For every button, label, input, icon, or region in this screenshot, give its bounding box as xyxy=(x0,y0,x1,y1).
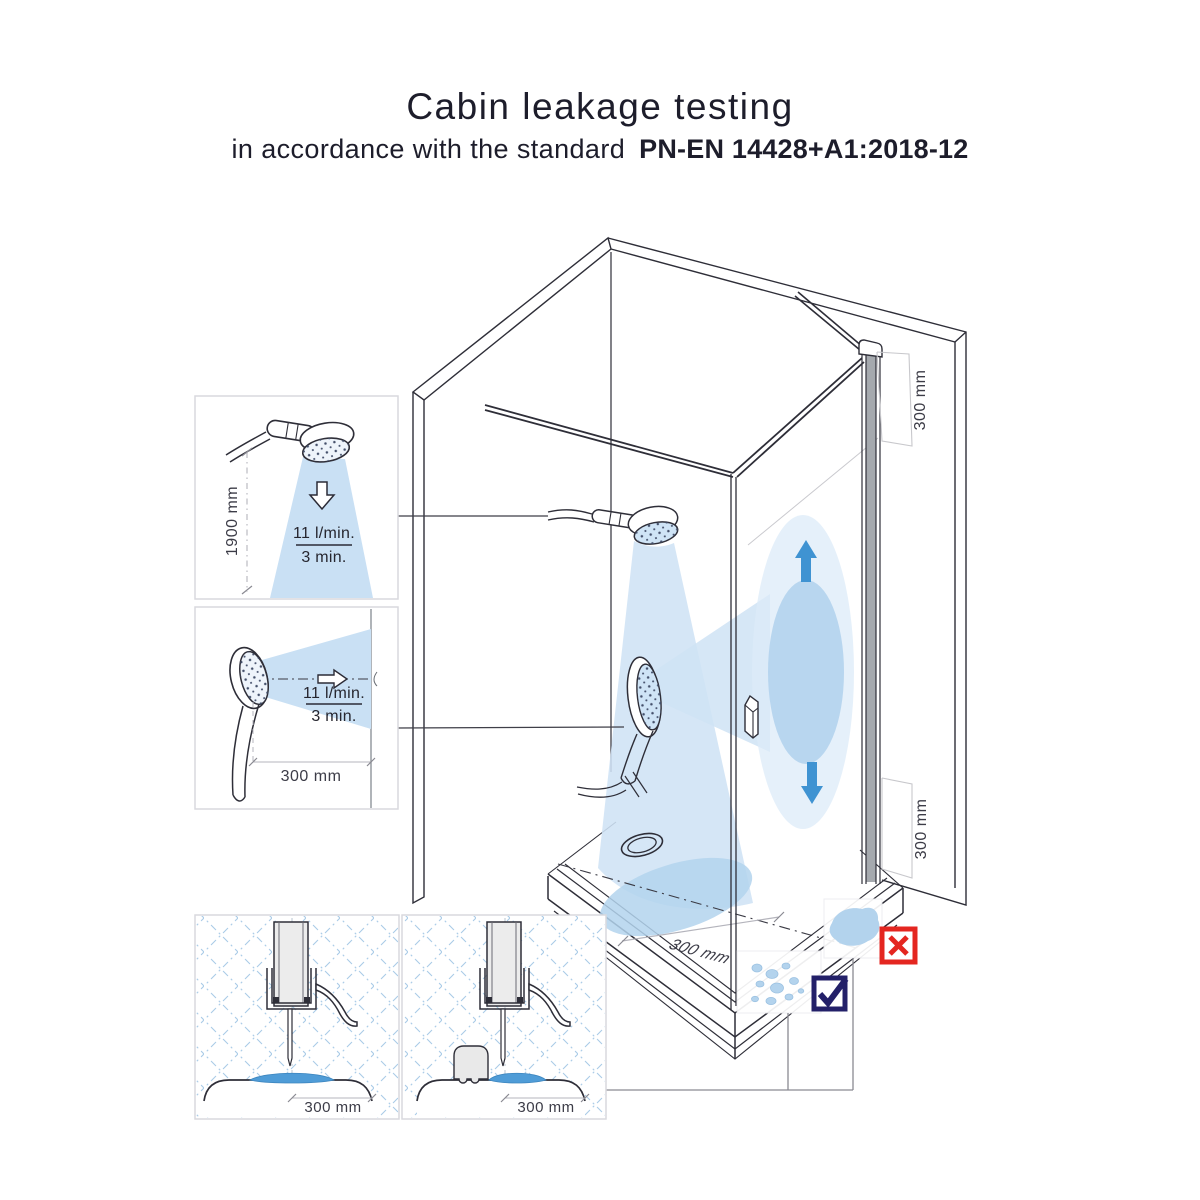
fail-checkbox xyxy=(882,929,915,962)
top-support-bar xyxy=(485,405,733,477)
inset-seal-plain: 300 mm xyxy=(195,915,399,1119)
door-bottom-dimension-label: 300 mm xyxy=(913,799,930,860)
threshold-block xyxy=(454,1046,488,1083)
height-dimension-label: 1900 mm xyxy=(224,486,241,556)
door-top-edge xyxy=(733,358,864,477)
seal-dimension-label: 300 mm xyxy=(304,1099,361,1116)
cabin-leakage-testing-diagram: { "header": { "title": "Cabin leakage te… xyxy=(0,0,1200,1200)
distance-dimension-label: 300 mm xyxy=(281,768,342,785)
flow-rate-label: 11 l/min. xyxy=(303,685,365,702)
spray-cones xyxy=(591,515,854,952)
cabin-shower-head-vertical xyxy=(548,502,680,547)
wall-profile-cap xyxy=(859,340,882,357)
seal-fin xyxy=(501,1009,505,1066)
door-handle xyxy=(745,696,758,738)
inset-vertical-spray: 11 l/min. 3 min. 1900 mm xyxy=(195,396,398,599)
seal-fin xyxy=(288,1009,292,1066)
pass-checkbox xyxy=(814,978,846,1009)
tray-dimension-label: 300 mm xyxy=(665,936,734,967)
door-hinge-edge xyxy=(731,474,736,1010)
wall-support-brace xyxy=(795,292,863,350)
duration-label: 3 min. xyxy=(301,549,346,566)
door-bottom-dimension: 300 mm xyxy=(882,778,930,878)
wall-profile-fill xyxy=(866,352,876,882)
door-spray-ellipse xyxy=(768,580,844,764)
duration-label: 3 min. xyxy=(311,708,356,725)
seal-dimension-label: 300 mm xyxy=(517,1099,574,1116)
splash-droplets xyxy=(737,951,846,1013)
leader-lines xyxy=(397,516,624,728)
door-top-dimension-label: 300 mm xyxy=(912,370,929,431)
inset-horizontal-spray: 11 l/min. 3 min. 300 mm xyxy=(195,607,398,809)
leak-puddle xyxy=(824,899,915,962)
flow-rate-label: 11 l/min. xyxy=(293,525,355,542)
inset-seal-threshold: 300 mm xyxy=(402,915,606,1119)
illustration-canvas: 300 mm 300 mm 300 mm xyxy=(0,0,1200,1200)
door-top-dimension: 300 mm xyxy=(877,352,929,446)
